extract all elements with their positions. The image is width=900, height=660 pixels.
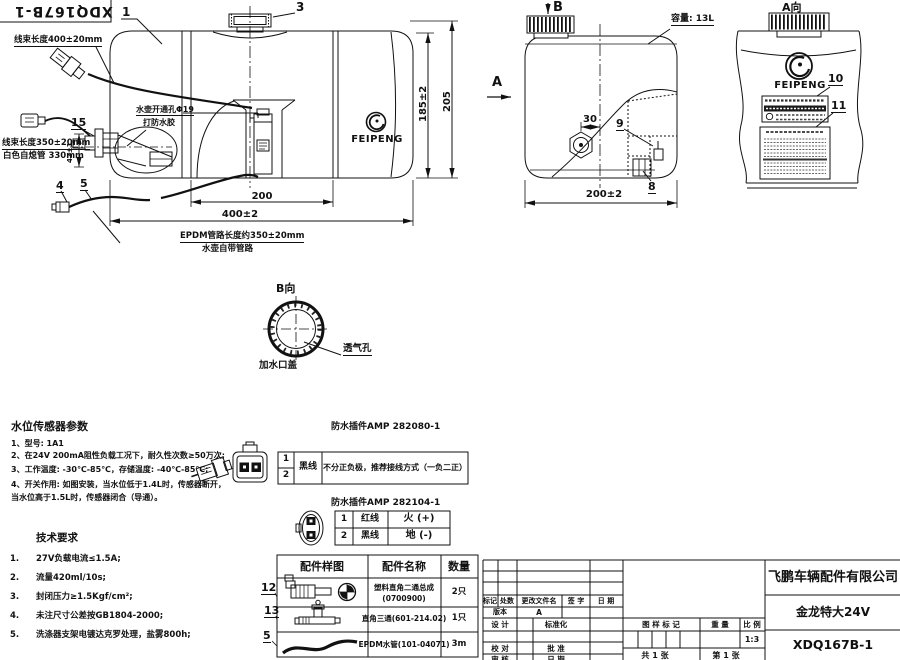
balloon-13: 13	[264, 605, 279, 618]
tech-req-item-2: 流量420ml/10s;	[36, 574, 106, 583]
parts-row3-name: EPDM水管(101-04071)	[358, 641, 449, 649]
tb-col-file: 更改文件名	[522, 598, 557, 605]
connector2-row2-pin: 2	[341, 532, 347, 541]
tech-req-no-4: 4.	[10, 612, 19, 621]
connector2-row1-wire: 红线	[361, 515, 379, 524]
pipe-note: 水壶自带管路	[202, 245, 253, 254]
tb-version-label: 版本	[493, 609, 507, 616]
vent-hole-label: 透气孔	[343, 344, 372, 356]
tb-weight-header: 重 量	[711, 621, 729, 629]
parts-col-name: 配件名称	[382, 561, 426, 572]
tb-sheet-num: 第 1 张	[712, 652, 739, 660]
dim-185: 185±2	[419, 86, 429, 122]
connector2-row2-wire: 黑线	[361, 532, 379, 541]
corner-drawing-no: XDQ167B-1	[14, 4, 113, 18]
tb-check: 校 对	[491, 645, 509, 653]
parts-col-qty: 数量	[448, 561, 470, 572]
parts-row1-name: 塑料直角二通总成	[374, 584, 434, 592]
parts-row2-qty: 1只	[452, 614, 466, 623]
engineering-drawing: XDQ167B-1 1 线束长度400±20mm 3 15 线束长度350±20…	[0, 0, 900, 660]
hose-icon	[283, 641, 357, 653]
balloon-12: 12	[261, 582, 276, 595]
connector1-title: 防水插件AMP 282080-1	[331, 423, 440, 432]
tb-col-sign: 签 字	[568, 598, 584, 605]
tech-req-item-1: 27V负载电流≤1.5A;	[36, 555, 121, 564]
company-name: 飞鹏车辆配件有限公司	[768, 571, 898, 584]
balloon-1: 1	[122, 6, 130, 18]
connector1-desc: 不分正负极，推荐接线方式（一负二正）	[323, 464, 467, 472]
connector1-wire: 黑线	[299, 463, 317, 472]
tech-req-item-4: 未注尺寸公差按GB1804-2000;	[36, 612, 163, 621]
tech-req-no-3: 3.	[10, 593, 19, 602]
b-view-title: B向	[276, 283, 295, 294]
parts-row1-name2: (0700900)	[382, 595, 425, 603]
tech-req-no-2: 2.	[10, 574, 19, 583]
tech-req-item-3: 封闭压力≥1.5Kgf/cm²;	[36, 593, 133, 602]
tech-req-no-5: 5.	[10, 631, 19, 640]
tb-approve: 批 准	[547, 645, 565, 653]
parts-row2-name: 直角三通(601-214.02)	[362, 615, 447, 623]
balloon-5b: 5	[263, 630, 271, 643]
dim-200-side: 200±2	[586, 190, 622, 200]
sensor-params-title: 水位传感器参数	[11, 421, 88, 432]
dim-42: 42±1	[67, 143, 74, 163]
tb-col-mark: 标记	[483, 598, 497, 605]
sensor-params-line-2: 2、在24V 200mA阻性负载工况下，耐久性次数≥50万次;	[11, 452, 225, 460]
connector2-row1-desc: 火 (+)	[403, 514, 434, 524]
balloon-15: 15	[71, 117, 86, 130]
epdm-note: EPDM管路长度约350±20mm	[180, 232, 304, 243]
glue-label: 打防水胶	[143, 119, 175, 127]
dim-200-front: 200	[252, 192, 273, 202]
drawing-number: XDQ167B-1	[793, 639, 873, 652]
tb-mark-header: 图 样 标 记	[642, 621, 680, 629]
tb-scale-header: 比 例	[743, 621, 761, 629]
tech-req-no-1: 1.	[10, 555, 19, 564]
sensor-params-line-4: 4、开关作用: 如图安装，当水位低于1.4L时，传感器断开，	[11, 481, 226, 489]
filler-cap-label: 加水口盖	[259, 361, 297, 371]
connector2-row2-desc: 地 (-)	[406, 531, 433, 541]
tb-design: 设 计	[491, 621, 509, 629]
tb-standardize: 标准化	[545, 621, 568, 629]
connector-oval-icon	[296, 511, 323, 545]
harness-length-top-label: 线束长度400±20mm	[14, 36, 102, 47]
connector2-row1-pin: 1	[341, 515, 347, 524]
b-view	[263, 296, 341, 362]
connector-front-icon	[233, 442, 267, 482]
connector2-title: 防水插件AMP 282104-1	[331, 499, 440, 508]
connector1-pin2: 2	[283, 471, 289, 480]
a-view-title: A向	[782, 2, 802, 13]
balloon-11: 11	[831, 100, 846, 113]
balloon-10: 10	[828, 73, 843, 86]
tb-review: 审 核	[491, 656, 509, 660]
harness-length-left-label: 线束长度350±20mm	[2, 139, 90, 150]
tb-version-value: A	[536, 609, 542, 617]
balloon-3: 3	[296, 1, 304, 13]
dim-205: 205	[443, 91, 453, 112]
view-arrow-b: B	[553, 1, 563, 14]
balloon-5: 5	[80, 178, 88, 191]
feipeng-logo-text-aview: FEIPENG	[774, 81, 826, 91]
capacity-label: 容量: 13L	[671, 15, 714, 26]
sensor-params-line-3: 3、工作温度: -30℃-85℃，存储温度: -40℃-85℃;	[11, 466, 208, 474]
tb-col-date: 日 期	[598, 598, 614, 605]
sensor-params-line-1: 1、型号: 1A1	[11, 440, 64, 448]
view-arrow-a: A	[492, 76, 502, 89]
balloon-9: 9	[616, 118, 624, 131]
tech-req-item-5: 洗涤器支架电镀达克罗处理，盐雾800h;	[36, 631, 191, 640]
dim-30: 30	[583, 115, 597, 125]
balloon-8: 8	[648, 181, 656, 194]
tb-date2: 日 期	[547, 656, 565, 660]
product-name: 金龙特大24V	[796, 606, 870, 618]
feipeng-logo-text-front: FEIPENG	[351, 135, 403, 145]
parts-row1-qty: 2只	[452, 588, 466, 597]
tb-col-count: 处数	[500, 598, 514, 605]
sensor-params-line-5: 当水位高于1.5L时，传感器闭合（导通）。	[11, 494, 162, 502]
side-view	[487, 3, 677, 208]
tb-scale-value: 1:3	[745, 636, 759, 644]
balloon-4: 4	[56, 180, 64, 193]
tee-fitting-icon	[295, 600, 340, 624]
connector1-pin1: 1	[283, 455, 289, 464]
parts-col-sample: 配件样图	[300, 561, 344, 572]
dim-400: 400±2	[222, 210, 258, 220]
elbow-fitting-icon	[285, 575, 356, 601]
tech-req-title: 技术要求	[36, 533, 78, 544]
parts-row3-qty: 3m	[452, 640, 467, 649]
tb-sheet-total: 共 1 张	[641, 652, 668, 660]
hole-label: 水壶开通孔Φ19	[136, 106, 194, 116]
